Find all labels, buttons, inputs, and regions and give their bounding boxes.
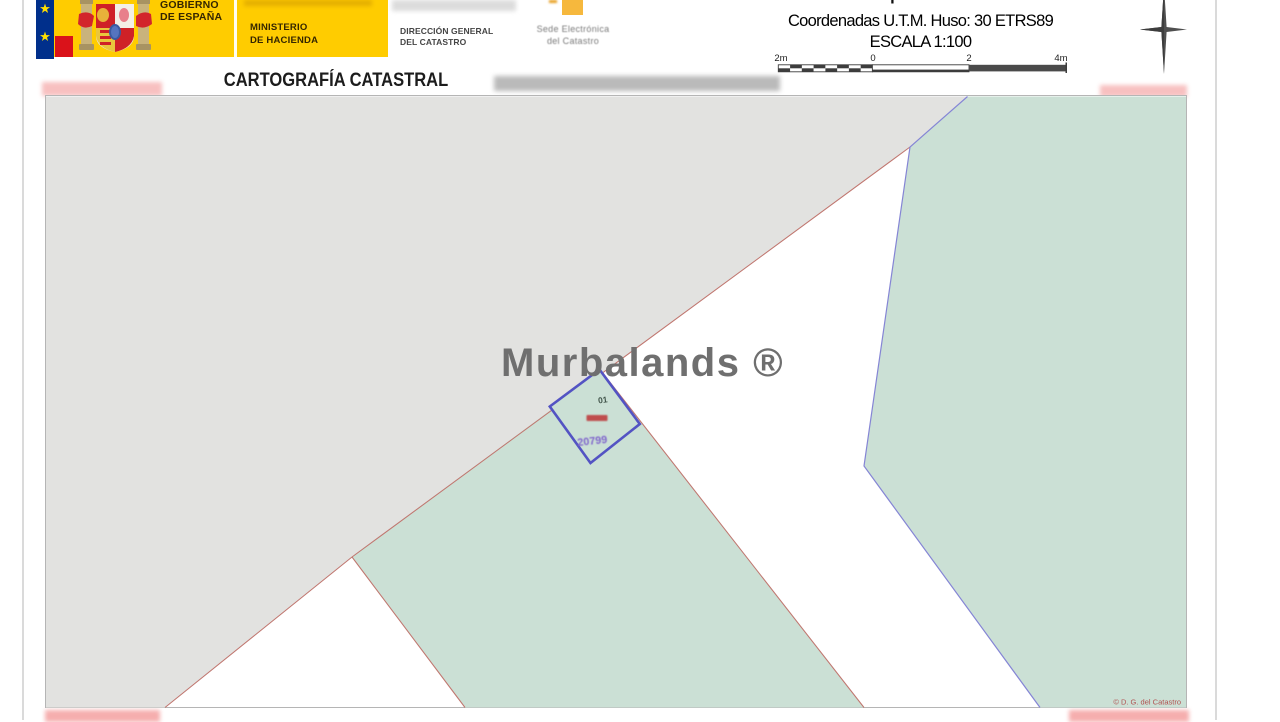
svg-text:© D. G. del Catastro: © D. G. del Catastro [1113, 698, 1181, 707]
svg-text:01: 01 [597, 394, 608, 405]
